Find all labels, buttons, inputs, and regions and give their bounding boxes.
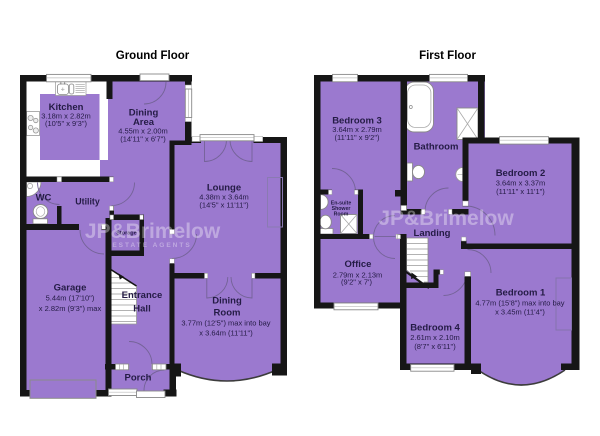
svg-text:Hall: Hall	[133, 304, 150, 315]
svg-text:Entrance: Entrance	[122, 290, 163, 301]
svg-text:Garage: Garage	[54, 283, 87, 294]
svg-text:(8'7" x 6'11"): (8'7" x 6'11")	[414, 342, 456, 351]
svg-text:Room: Room	[214, 308, 241, 319]
svg-text:(11'11" x 9'2"): (11'11" x 9'2")	[334, 133, 380, 142]
svg-text:3.77m (12'5") max into bay: 3.77m (12'5") max into bay	[181, 319, 270, 328]
svg-text:Porch: Porch	[125, 373, 152, 384]
svg-text:(14'11" x 6'7"): (14'11" x 6'7")	[120, 135, 166, 144]
svg-text:x 2.82m (9'3") max: x 2.82m (9'3") max	[39, 304, 102, 313]
svg-text:(11'11" x 11'1"): (11'11" x 11'1")	[496, 187, 545, 196]
svg-text:ESTATE AGENTS: ESTATE AGENTS	[112, 242, 191, 249]
svg-text:Ground Floor: Ground Floor	[116, 50, 190, 62]
svg-text:(9'2" x 7'): (9'2" x 7')	[341, 278, 372, 287]
svg-text:x 3.45m (11'4"): x 3.45m (11'4")	[495, 308, 545, 317]
svg-text:JP&Brimelow: JP&Brimelow	[378, 207, 514, 230]
svg-text:WC: WC	[36, 193, 52, 204]
svg-text:(10'5" x 9'3"): (10'5" x 9'3")	[45, 119, 87, 128]
svg-text:JP&Brimelow: JP&Brimelow	[85, 220, 221, 243]
svg-text:Bathroom: Bathroom	[414, 142, 459, 153]
svg-text:Dining: Dining	[212, 296, 242, 307]
svg-text:x 3.64m (11'11"): x 3.64m (11'11")	[199, 329, 253, 338]
svg-text:Bedroom 1: Bedroom 1	[496, 288, 546, 299]
svg-text:Office: Office	[345, 259, 372, 270]
svg-text:Utility: Utility	[75, 197, 100, 207]
svg-text:Bedroom 4: Bedroom 4	[410, 323, 460, 334]
svg-text:4.77m (15'8") max into bay: 4.77m (15'8") max into bay	[475, 299, 564, 308]
svg-text:5.44m (17'10"): 5.44m (17'10")	[46, 294, 95, 303]
svg-text:2.61m x 2.10m: 2.61m x 2.10m	[410, 333, 460, 342]
svg-text:First Floor: First Floor	[419, 50, 476, 62]
svg-text:Bedroom 2: Bedroom 2	[496, 168, 546, 179]
svg-text:(14'5" x 11'11"): (14'5" x 11'11")	[199, 201, 249, 210]
svg-text:Room: Room	[334, 212, 349, 218]
